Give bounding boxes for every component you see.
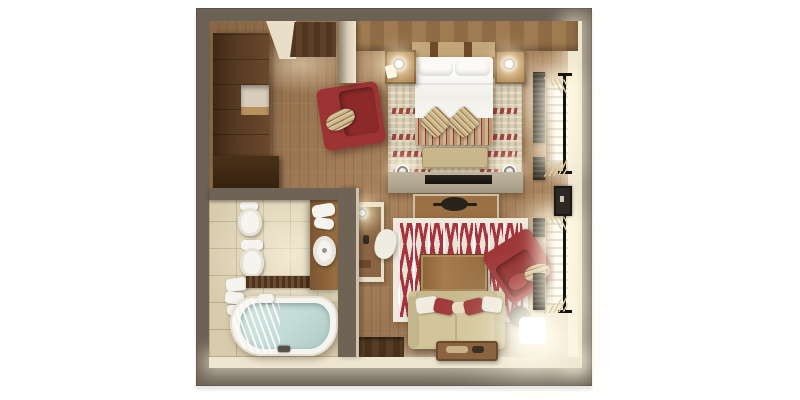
apartment-plan <box>196 8 592 386</box>
sofa-pillow-white <box>481 296 503 314</box>
headboard-strap <box>464 42 472 57</box>
wardrobe-open-shelf <box>241 85 269 115</box>
rod-finial <box>558 73 572 76</box>
foot-bench <box>422 147 488 168</box>
bedside-lamp-right <box>503 58 515 70</box>
bathroom-side-wall <box>338 188 359 357</box>
bathtub-glass-screen <box>232 299 280 353</box>
mosaic-floor-band <box>246 276 310 288</box>
wall-stub-bedroom <box>338 21 356 83</box>
bed-pillow-left <box>418 60 453 76</box>
curtain-panel-dark <box>533 218 545 237</box>
tv-screen <box>425 175 492 184</box>
bath-faucet <box>278 346 290 352</box>
inner-wall-bottom <box>209 357 582 368</box>
bathroom-top-wall <box>209 188 356 200</box>
headboard <box>412 42 495 57</box>
entry-floor-recess <box>358 337 404 357</box>
shelf-decor-item <box>359 260 371 268</box>
shelf-decor-item <box>363 235 369 244</box>
bedside-lamp-left <box>393 58 405 70</box>
basin-drain <box>322 248 327 253</box>
curtain-panel-dark <box>533 72 545 143</box>
wall-panel-between-windows <box>554 186 572 216</box>
wall-panel-inset <box>560 196 564 202</box>
floorplan-render <box>0 0 800 400</box>
duvet-fold-line <box>415 83 493 85</box>
dark-entry-mat <box>290 22 336 57</box>
tray-item <box>472 346 484 353</box>
curtain-panel-dark <box>533 273 545 310</box>
glowing-floor-lamp <box>519 317 546 344</box>
decor-bowl <box>441 197 468 211</box>
coffee-table <box>420 254 488 292</box>
bed-pillow-right <box>455 60 490 76</box>
tray-item <box>446 346 468 353</box>
bedroom-red-armchair <box>316 81 387 152</box>
toilet <box>240 248 264 277</box>
bath-towel <box>258 294 274 303</box>
serving-tray <box>436 341 498 361</box>
headboard-strap <box>430 42 438 57</box>
wardrobe-base-cabinet <box>213 156 279 192</box>
bidet <box>238 208 262 236</box>
